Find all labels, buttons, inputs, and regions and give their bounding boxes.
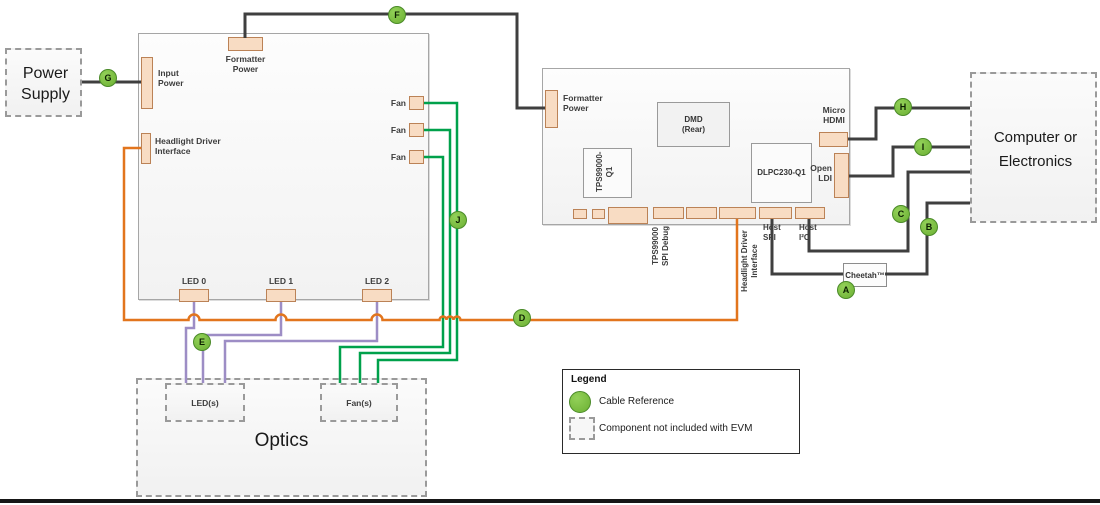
legend-box: Legend Cable Reference Component not inc… [562,369,800,454]
optics-leds-label: LED(s) [167,385,243,420]
legend-cable-reference-label: Cable Reference [599,396,674,407]
led2-wire [225,302,377,383]
dmd-chip: DMD (Rear) [657,102,730,147]
cable-ref-b: B [920,218,938,236]
power-supply-box: Power Supply [5,48,82,117]
host-i2c-connector [795,207,825,219]
open-ldi-label: Open LDI [802,163,832,183]
computer-label: Computer or Electronics [994,126,1078,173]
tps99000-label: TPS99000-Q1 [595,152,619,192]
input-power-connector [141,57,153,109]
fan-connector-1 [409,96,424,110]
right-headlight-driver-interface-label: Headlight Driver Interface [740,225,762,297]
board-connector-small-2 [592,209,605,219]
cable-ref-j: J [449,211,467,229]
cable-ref-f: F [388,6,406,24]
right-formatter-power-label: Formatter Power [563,93,611,113]
led1-label: LED 1 [266,276,296,286]
optics-leds-box: LED(s) [165,383,245,422]
legend-component-note-label: Component not included with EVM [599,423,752,434]
tps-spi-debug-connector [653,207,684,219]
board-connector-3 [608,207,648,224]
left-formatter-power-connector [228,37,263,51]
dmd-label: DMD (Rear) [676,115,712,135]
led1-wire [203,302,281,383]
cable-ref-i: I [914,138,932,156]
host-i2c-label: Host I²C [799,223,825,242]
optics-fans-box: Fan(s) [320,383,398,422]
board-connector-small-1 [573,209,587,219]
board-connector-5 [686,207,717,219]
fan-connector-3 [409,150,424,164]
tps-spi-debug-label: TPS99000 SPI Debug [651,223,677,269]
cable-ref-d: D [513,309,531,327]
legend-cable-reference-icon [569,391,591,413]
left-headlight-driver-interface-label: Headlight Driver Interface [155,136,237,156]
input-power-label: Input Power [158,68,190,88]
left-headlight-driver-interface-connector [141,133,151,164]
power-supply-label: Power Supply [15,64,77,106]
cable-ref-e: E [193,333,211,351]
micro-hdmi-label: Micro HDMI [814,105,854,125]
host-spi-label: Host SPI [763,223,789,242]
evm-connection-diagram: Power Supply Computer or Electronics LED… [0,0,1100,505]
led0-connector [179,289,209,302]
left-formatter-power-label: Formatter Power [215,54,276,74]
fan-label-1: Fan [380,98,406,108]
led2-connector [362,289,392,302]
optics-label: Optics [136,428,427,454]
cable-ref-a: A [837,281,855,299]
cable-ref-g: G [99,69,117,87]
optics-fans-label: Fan(s) [322,385,396,420]
led2-label: LED 2 [362,276,392,286]
cable-ref-c: C [892,205,910,223]
right-headlight-driver-interface-connector [719,207,756,219]
open-ldi-connector [834,153,849,198]
legend-title: Legend [571,374,607,385]
fan-connector-2 [409,123,424,137]
page-divider-rule [0,499,1100,503]
host-spi-connector [759,207,792,219]
led0-label: LED 0 [179,276,209,286]
computer-box: Computer or Electronics [970,72,1097,223]
right-formatter-power-connector [545,90,558,128]
cable-i-wire [849,147,970,176]
micro-hdmi-connector [819,132,848,147]
legend-component-swatch [569,417,595,440]
fan-label-3: Fan [380,152,406,162]
led1-connector [266,289,296,302]
dlpc230-label: DLPC230-Q1 [757,168,805,178]
cable-ref-h: H [894,98,912,116]
fan-label-2: Fan [380,125,406,135]
